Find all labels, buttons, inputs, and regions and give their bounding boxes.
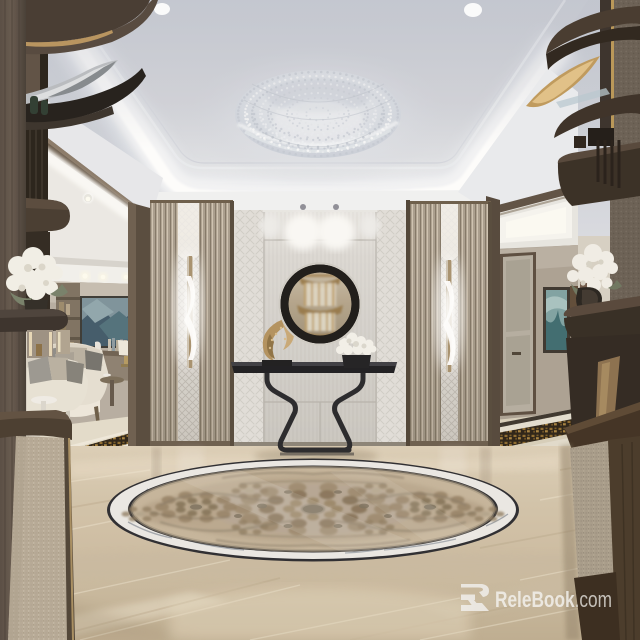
svg-text:ReleBook.com: ReleBook.com xyxy=(495,587,612,612)
